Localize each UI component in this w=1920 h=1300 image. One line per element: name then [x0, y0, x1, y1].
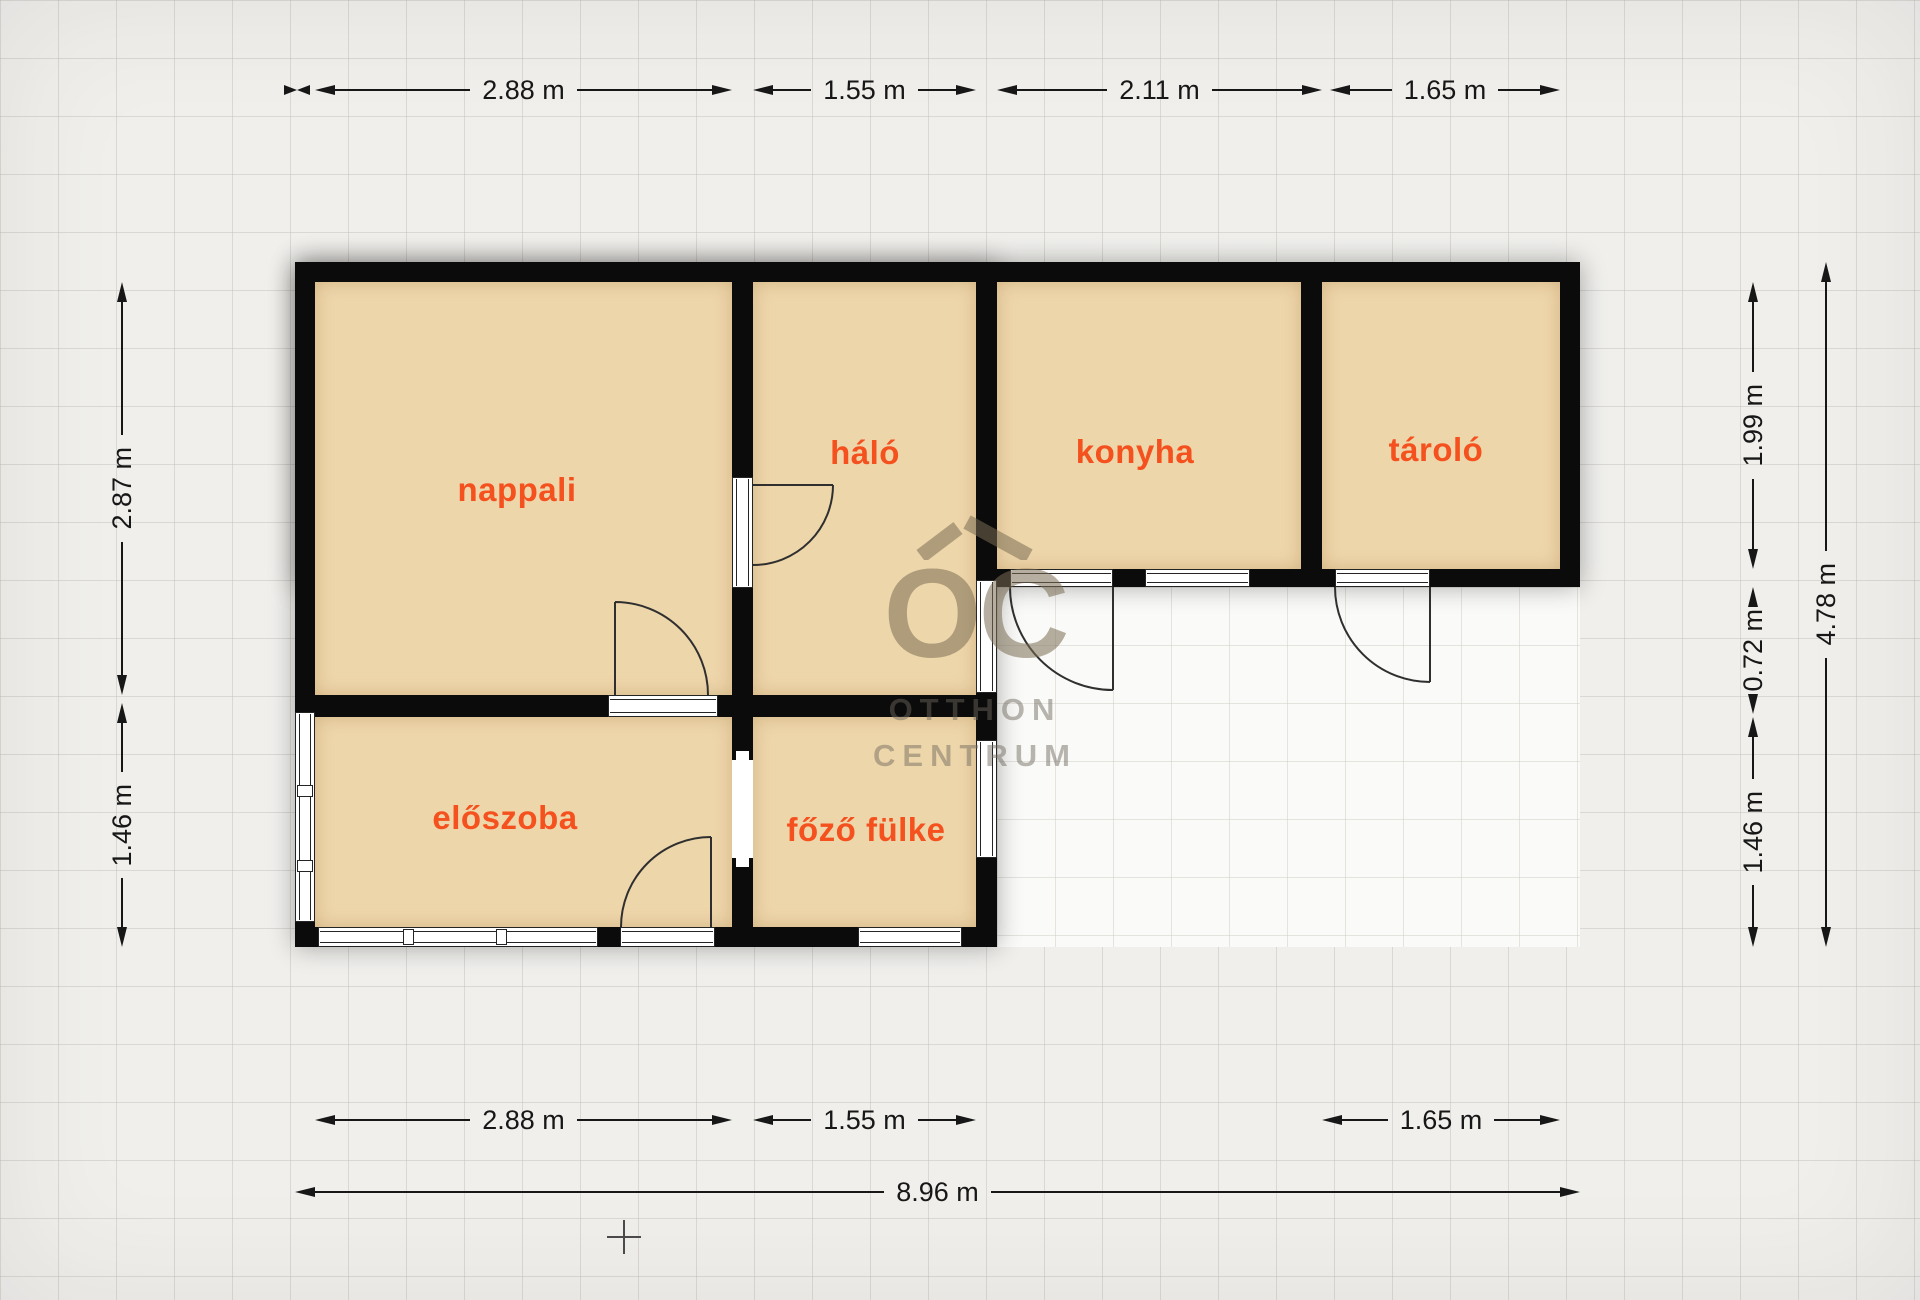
wall-top	[295, 262, 1580, 282]
wall-eloszoba-fozo	[732, 858, 753, 927]
dim-label: 1.65 m	[1388, 1105, 1495, 1136]
dim-left-nappali: 2.87 m	[107, 282, 137, 695]
wall-left-upper	[295, 262, 315, 712]
window-konyha-south	[1145, 569, 1250, 587]
room-label-eloszoba: előszoba	[432, 799, 577, 837]
wall-bottom-right	[962, 927, 997, 947]
origin-crosshair	[607, 1220, 641, 1254]
dim-label: 1.46 m	[107, 772, 138, 879]
dim-label: 1.46 m	[1738, 779, 1769, 886]
room-halo	[753, 282, 976, 695]
room-label-tarolo: tároló	[1389, 431, 1484, 469]
window-mullion	[403, 929, 414, 945]
dim-label: 2.87 m	[107, 435, 138, 542]
dim-right-gap: 0.72 m	[1738, 587, 1768, 695]
dim-label: 2.11 m	[1107, 75, 1212, 106]
dim-label: 1.55 m	[811, 75, 918, 106]
window-mullion	[297, 860, 313, 872]
dim-bottom-eloszoba: 2.88 m	[315, 1105, 732, 1135]
wall-konyha-tarolo	[1301, 262, 1322, 587]
window-eloszoba-west	[295, 712, 315, 922]
floorplan-canvas: OC OTTHON CENTRUM nappali háló konyha tá…	[0, 0, 1920, 1300]
dim-top-halo: 1.55 m	[753, 75, 976, 105]
opening-eloszoba-fozo	[732, 760, 753, 858]
wall-nappali-halo-a	[732, 282, 753, 477]
wall-konyha-bottom-pier	[1113, 569, 1145, 587]
dim-right-fozo: 1.46 m	[1738, 717, 1768, 947]
dim-label: 1.99 m	[1738, 372, 1769, 479]
door-sill-nappali-eloszoba	[608, 695, 718, 717]
room-label-fozo-fulke: főző fülke	[787, 811, 946, 849]
dim-label: 1.65 m	[1392, 75, 1499, 106]
opening-jamb	[736, 751, 749, 762]
dim-label: 8.96 m	[884, 1177, 991, 1208]
wall-bottom-mid	[715, 927, 858, 947]
dim-right-total: 4.78 m	[1811, 262, 1841, 947]
opening-jamb	[736, 856, 749, 867]
window-fozo-east	[976, 740, 997, 858]
wall-konyha-bottom-b	[1250, 569, 1335, 587]
wall-halo-right-stub	[976, 693, 997, 740]
room-tarolo	[1322, 282, 1560, 569]
dim-label: 4.78 m	[1811, 551, 1842, 658]
door-sill-konyha-terrace	[1010, 569, 1113, 587]
window-eloszoba-south	[318, 927, 598, 947]
window-mullion	[496, 929, 507, 945]
wall-mid-a	[295, 695, 608, 717]
dim-bottom-fozo: 1.55 m	[753, 1105, 976, 1135]
room-label-halo: háló	[830, 434, 900, 472]
dim-top-konyha: 2.11 m	[997, 75, 1322, 105]
window-fozo-south	[858, 927, 962, 947]
wall-nappali-halo-b	[732, 588, 753, 760]
room-label-konyha: konyha	[1076, 433, 1195, 471]
door-sill-tarolo-terrace	[1335, 569, 1430, 587]
wall-halo-konyha	[976, 282, 997, 580]
dim-bottom-tarolo: 1.65 m	[1322, 1105, 1560, 1135]
room-konyha	[997, 282, 1301, 569]
dim-label: 2.88 m	[470, 1105, 577, 1136]
window-mullion	[297, 785, 313, 797]
dim-top-tarolo: 1.65 m	[1330, 75, 1560, 105]
terrace-area	[997, 587, 1580, 947]
dim-label: 0.72 m	[1738, 607, 1769, 694]
wall-thickness-marker	[284, 85, 310, 95]
dim-left-eloszoba: 1.46 m	[107, 703, 137, 947]
dim-top-nappali: 2.88 m	[315, 75, 732, 105]
wall-left-lower	[295, 922, 315, 947]
window-halo-east	[976, 580, 997, 693]
wall-tarolo-bottom	[1430, 569, 1580, 587]
dim-label: 1.55 m	[811, 1105, 918, 1136]
room-label-nappali: nappali	[457, 471, 576, 509]
wall-mid-b	[718, 695, 997, 717]
wall-fozo-right-stub	[976, 858, 997, 927]
wall-right	[1560, 262, 1580, 587]
door-sill-entrance	[620, 927, 715, 947]
dim-bottom-total: 8.96 m	[295, 1177, 1580, 1207]
dim-right-konyha: 1.99 m	[1738, 282, 1768, 569]
dim-label: 2.88 m	[470, 75, 577, 106]
marker-triangle-left	[297, 85, 310, 95]
wall-bottom-pier	[598, 927, 620, 947]
marker-triangle-right	[284, 85, 297, 95]
door-sill-nappali-halo	[732, 477, 753, 588]
